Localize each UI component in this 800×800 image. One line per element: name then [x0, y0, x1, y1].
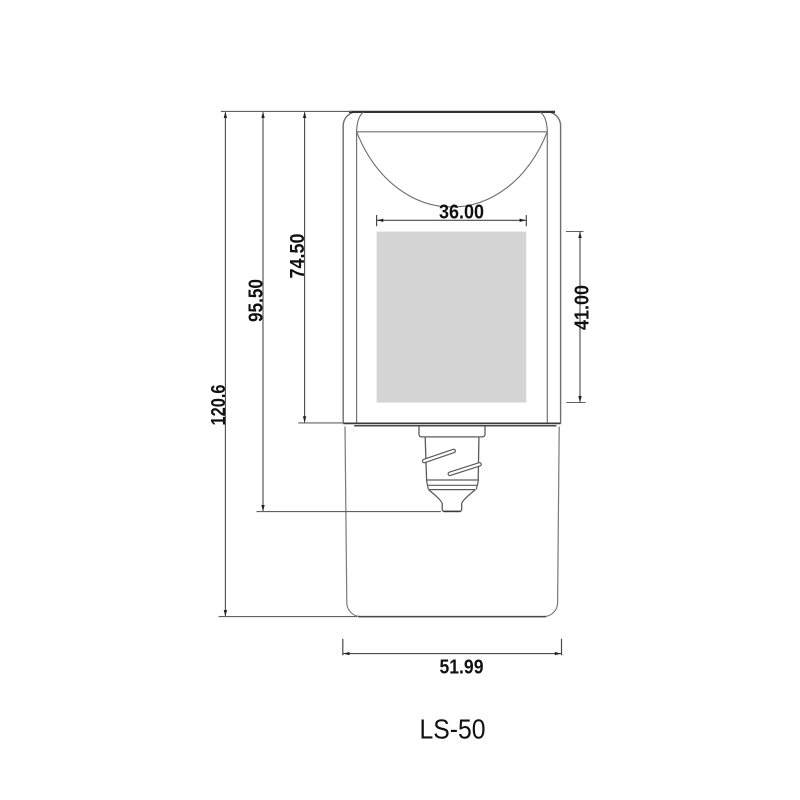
svg-text:36.00: 36.00 [439, 200, 484, 223]
svg-text:41.00: 41.00 [571, 285, 594, 330]
svg-text:51.99: 51.99 [440, 656, 484, 679]
svg-text:74.50: 74.50 [286, 234, 309, 279]
svg-text:120.6: 120.6 [207, 385, 230, 426]
svg-text:95.50: 95.50 [245, 279, 268, 322]
svg-text:LS-50: LS-50 [420, 714, 486, 745]
